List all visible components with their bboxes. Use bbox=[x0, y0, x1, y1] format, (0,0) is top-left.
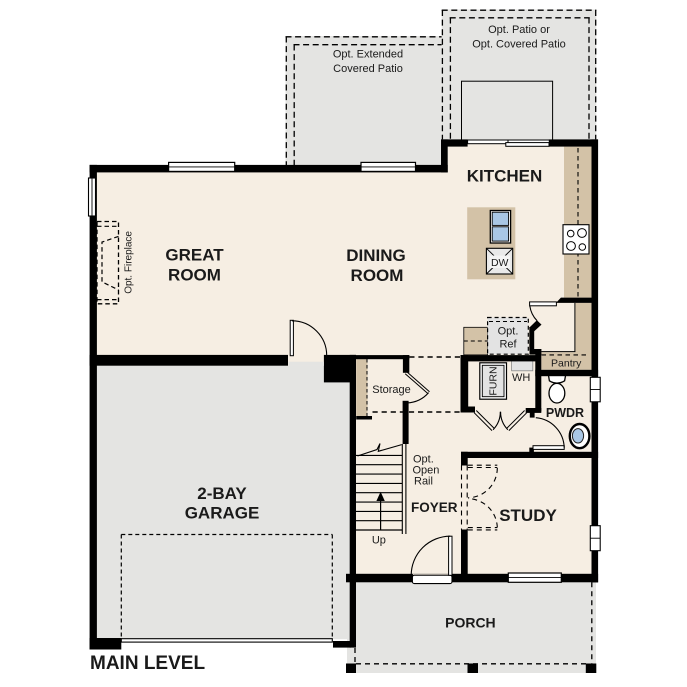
svg-text:Rail: Rail bbox=[414, 476, 433, 488]
svg-text:FURN: FURN bbox=[488, 366, 500, 395]
svg-text:KITCHEN: KITCHEN bbox=[467, 167, 543, 186]
svg-text:Opt. Fireplace: Opt. Fireplace bbox=[123, 231, 134, 294]
svg-text:Storage: Storage bbox=[372, 384, 411, 396]
svg-text:FOYER: FOYER bbox=[411, 500, 458, 515]
svg-text:GREAT: GREAT bbox=[165, 246, 224, 265]
svg-text:2-BAY: 2-BAY bbox=[197, 484, 247, 503]
svg-text:ROOM: ROOM bbox=[351, 266, 404, 285]
svg-text:Ref: Ref bbox=[499, 339, 517, 351]
svg-text:DINING: DINING bbox=[346, 246, 406, 265]
svg-text:PWDR: PWDR bbox=[546, 406, 584, 420]
svg-text:PORCH: PORCH bbox=[445, 614, 496, 630]
svg-text:MAIN LEVEL: MAIN LEVEL bbox=[90, 653, 205, 674]
svg-text:STUDY: STUDY bbox=[499, 506, 557, 525]
svg-text:DW: DW bbox=[491, 257, 509, 269]
svg-text:GARAGE: GARAGE bbox=[185, 504, 260, 523]
svg-text:ROOM: ROOM bbox=[168, 266, 221, 285]
svg-text:Covered Patio: Covered Patio bbox=[333, 63, 403, 75]
svg-text:Opt. Patio or: Opt. Patio or bbox=[488, 24, 550, 36]
svg-text:Opt. Covered Patio: Opt. Covered Patio bbox=[472, 39, 566, 51]
svg-text:WH: WH bbox=[512, 372, 530, 384]
svg-text:Opt. Extended: Opt. Extended bbox=[333, 49, 403, 61]
svg-text:Opt.: Opt. bbox=[498, 326, 519, 338]
svg-text:Up: Up bbox=[372, 535, 386, 547]
svg-text:Pantry: Pantry bbox=[551, 357, 582, 369]
